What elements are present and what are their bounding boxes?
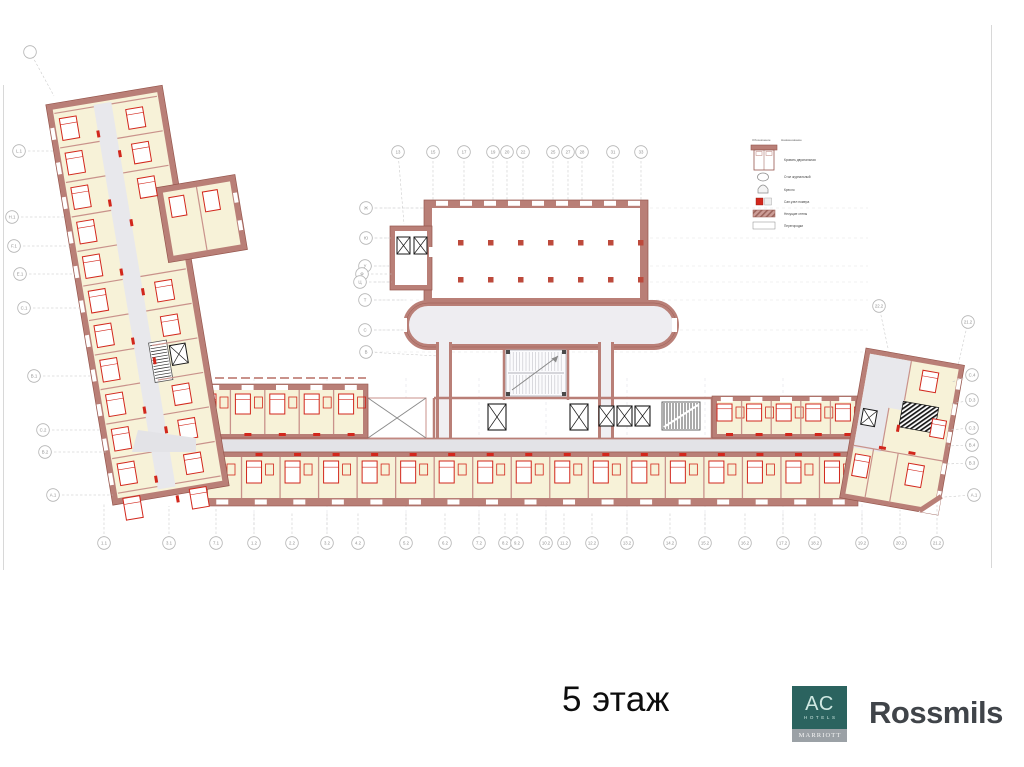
- bearing-wall-icon: [753, 210, 775, 217]
- legend-row-table: Стол журнальный: [758, 173, 811, 181]
- elevator-icons: [488, 404, 650, 430]
- svg-text:21.2: 21.2: [964, 320, 973, 325]
- ac-logo-letters: AC: [805, 695, 834, 713]
- bed-icon: [751, 145, 777, 170]
- service-core: [368, 398, 712, 438]
- upper-room-band-a: [196, 378, 368, 438]
- legend-label: Несущие стены: [784, 212, 808, 216]
- svg-text:17.2: 17.2: [779, 541, 788, 546]
- svg-text:19.2: 19.2: [858, 541, 867, 546]
- svg-text:19: 19: [491, 150, 496, 155]
- svg-text:11.2: 11.2: [560, 541, 569, 546]
- presentation-slide: 1315171920222527283133ЖЮУФЦТСВL.1H.1F.1E…: [0, 0, 1024, 767]
- hall-block: [424, 200, 648, 306]
- svg-text:C.2: C.2: [40, 428, 47, 433]
- svg-text:13: 13: [396, 150, 401, 155]
- legend-row-bearing-wall: Несущие стены: [753, 210, 808, 217]
- svg-text:18.2: 18.2: [811, 541, 820, 546]
- svg-text:C.1: C.1: [21, 306, 28, 311]
- svg-text:27: 27: [566, 150, 571, 155]
- main-corridor: [130, 438, 868, 453]
- legend-label: Сан.узел номера: [784, 200, 809, 204]
- partition-icon: [753, 222, 775, 229]
- svg-text:B.3: B.3: [969, 461, 976, 466]
- rossmils-logo: Rossmils: [869, 695, 1003, 731]
- ac-hotels-logo: AC HOTELS MARRIOTT: [792, 686, 847, 742]
- svg-text:В: В: [365, 350, 368, 355]
- legend-col-symbol: Обозначение: [752, 138, 771, 142]
- svg-text:33: 33: [639, 150, 644, 155]
- legend-label: Кровать двуспальная: [784, 158, 816, 162]
- service-stair-icon: [662, 402, 700, 430]
- svg-text:20.2: 20.2: [896, 541, 905, 546]
- ac-logo-marriott-band: MARRIOTT: [792, 729, 847, 742]
- table-icon: [758, 173, 769, 181]
- floor-plan-drawing: 1315171920222527283133ЖЮУФЦТСВL.1H.1F.1E…: [0, 0, 1024, 600]
- svg-text:13.2: 13.2: [623, 541, 632, 546]
- svg-text:Ж: Ж: [364, 206, 368, 211]
- svg-text:15.2: 15.2: [701, 541, 710, 546]
- svg-text:B.1: B.1: [31, 374, 38, 379]
- upper-room-band-b: [712, 396, 862, 438]
- svg-text:6.2: 6.2: [442, 541, 449, 546]
- svg-text:3.2: 3.2: [324, 541, 331, 546]
- svg-text:31: 31: [611, 150, 616, 155]
- svg-text:C.4: C.4: [969, 373, 976, 378]
- svg-text:21.2: 21.2: [933, 541, 942, 546]
- svg-text:1.2: 1.2: [251, 541, 258, 546]
- legend-row-bed: Кровать двуспальная: [751, 145, 816, 170]
- svg-text:Ю: Ю: [364, 236, 369, 241]
- lower-room-band: [203, 452, 858, 506]
- plan-legend: Обозначение Наименование Кровать двуспал…: [751, 138, 816, 229]
- svg-text:D.3: D.3: [969, 398, 976, 403]
- svg-text:22.2: 22.2: [875, 304, 884, 309]
- svg-text:3.1: 3.1: [166, 541, 173, 546]
- svg-text:4.2: 4.2: [355, 541, 362, 546]
- legend-label: Стол журнальный: [784, 175, 811, 179]
- svg-text:15: 15: [431, 150, 436, 155]
- legend-row-bathroom: Сан.узел номера: [756, 198, 809, 205]
- left-wing-annex: [156, 174, 247, 262]
- svg-text:2.2: 2.2: [289, 541, 296, 546]
- legend-col-name: Наименование: [781, 138, 802, 142]
- svg-text:1.1: 1.1: [101, 541, 108, 546]
- svg-text:A.1: A.1: [971, 493, 978, 498]
- svg-text:E.1: E.1: [17, 272, 24, 277]
- svg-text:A.1: A.1: [50, 493, 57, 498]
- svg-text:L.1: L.1: [16, 149, 23, 154]
- svg-text:12.2: 12.2: [588, 541, 597, 546]
- svg-text:B.2: B.2: [42, 450, 49, 455]
- ac-logo-hotels: HOTELS: [801, 715, 837, 720]
- svg-text:B.4: B.4: [969, 443, 976, 448]
- svg-text:20: 20: [505, 150, 510, 155]
- svg-text:C.3: C.3: [969, 426, 976, 431]
- svg-text:17: 17: [462, 150, 467, 155]
- building-plan: [46, 76, 965, 522]
- legend-row-partition: Перегородки: [753, 222, 803, 229]
- svg-text:5.2: 5.2: [403, 541, 410, 546]
- ac-logo-marriott: MARRIOTT: [798, 732, 842, 739]
- svg-text:14.2: 14.2: [666, 541, 675, 546]
- svg-text:С: С: [363, 328, 366, 333]
- ac-logo-square: AC HOTELS: [792, 686, 847, 729]
- legend-label: Кресло: [784, 188, 795, 192]
- floor-title: 5 этаж: [562, 680, 670, 720]
- svg-text:10.2: 10.2: [542, 541, 551, 546]
- svg-text:28: 28: [580, 150, 585, 155]
- svg-text:H.1: H.1: [9, 215, 16, 220]
- svg-text:7.1: 7.1: [213, 541, 220, 546]
- shaft-cross-icon: [368, 398, 426, 438]
- right-wing-block: [840, 348, 965, 515]
- svg-text:25: 25: [551, 150, 556, 155]
- bathroom-icon: [756, 198, 772, 205]
- svg-text:22: 22: [521, 150, 526, 155]
- svg-text:8.2: 8.2: [502, 541, 509, 546]
- svg-text:7.2: 7.2: [476, 541, 483, 546]
- svg-text:F.1: F.1: [11, 244, 17, 249]
- svg-text:9.2: 9.2: [514, 541, 521, 546]
- armchair-icon: [758, 185, 768, 193]
- svg-text:16.2: 16.2: [741, 541, 750, 546]
- grand-staircase: [504, 348, 568, 400]
- legend-label: Перегородки: [784, 224, 803, 228]
- elevator-annex: [390, 226, 433, 290]
- svg-text:Т: Т: [364, 298, 367, 303]
- legend-row-armchair: Кресло: [758, 185, 795, 193]
